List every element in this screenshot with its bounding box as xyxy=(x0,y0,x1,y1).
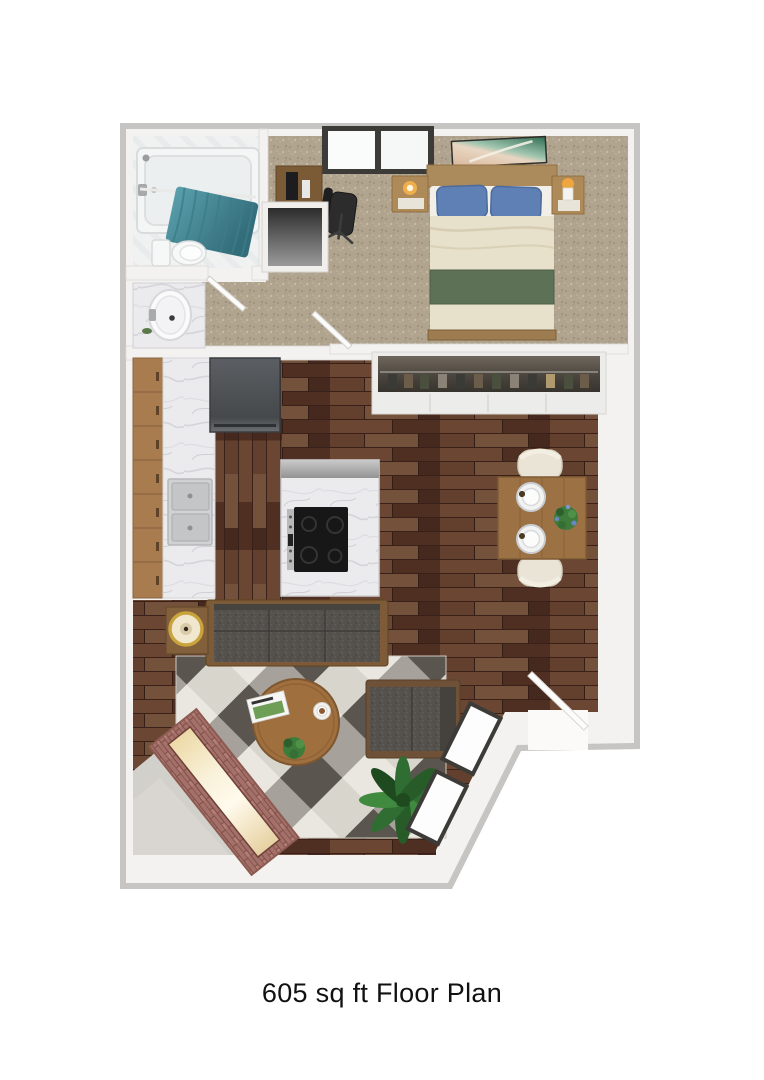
kitchen-counter xyxy=(163,358,215,598)
tv-icon xyxy=(286,172,298,200)
bed-runner xyxy=(430,270,554,304)
headboard xyxy=(427,165,557,187)
place-setting-bottom xyxy=(517,525,545,553)
sofa xyxy=(206,600,388,666)
toilet xyxy=(152,240,206,266)
dining-chair-bottom xyxy=(518,556,562,586)
footboard xyxy=(428,330,556,340)
wardrobe-closet xyxy=(372,352,606,414)
bed xyxy=(428,185,556,340)
kitchen-island xyxy=(281,460,379,596)
floor-plan-page: 605 sq ft Floor Plan xyxy=(0,0,764,1080)
storage-closet xyxy=(262,202,328,272)
refrigerator xyxy=(210,358,280,432)
gold-lamp xyxy=(170,613,202,645)
table-plant xyxy=(283,737,305,759)
armchair xyxy=(366,680,460,758)
caption: 605 sq ft Floor Plan xyxy=(0,978,764,1009)
kitchen-sink xyxy=(168,479,212,545)
entry-doorway xyxy=(528,710,588,750)
vanity-plant-sprig xyxy=(142,328,152,334)
nightstand-right xyxy=(552,176,584,214)
sink-drain xyxy=(169,315,175,321)
bedroom-window xyxy=(322,126,434,174)
vanity-faucet xyxy=(149,309,156,321)
coffee-cup xyxy=(314,703,331,720)
shower-head-icon xyxy=(143,155,150,162)
cooktop xyxy=(294,507,348,572)
nightstand-left xyxy=(392,176,428,212)
range-hood xyxy=(281,460,379,478)
dresser-tv xyxy=(276,166,322,204)
vanity xyxy=(133,283,205,348)
dining-chair-top xyxy=(518,450,562,480)
bathroom xyxy=(137,148,259,266)
hall-carpet xyxy=(202,282,268,346)
place-setting-top xyxy=(517,483,545,511)
wall-art xyxy=(451,137,546,168)
side-table xyxy=(166,607,208,654)
floor-plan-image xyxy=(0,0,764,960)
